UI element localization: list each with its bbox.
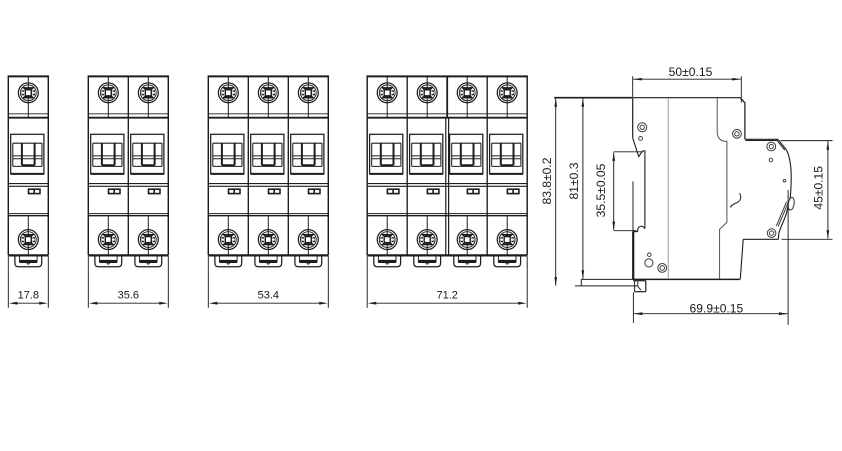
- svg-text:45±0.15: 45±0.15: [811, 166, 825, 210]
- svg-text:17.8: 17.8: [18, 290, 39, 302]
- svg-text:83.8±0.2: 83.8±0.2: [540, 157, 554, 204]
- svg-text:81±0.3: 81±0.3: [567, 162, 581, 199]
- svg-text:35.5±0.05: 35.5±0.05: [594, 163, 608, 217]
- svg-text:69.9±0.15: 69.9±0.15: [690, 301, 744, 315]
- svg-text:35.6: 35.6: [118, 290, 139, 302]
- svg-text:53.4: 53.4: [258, 290, 279, 302]
- svg-text:50±0.15: 50±0.15: [669, 65, 713, 79]
- svg-text:71.2: 71.2: [436, 290, 457, 302]
